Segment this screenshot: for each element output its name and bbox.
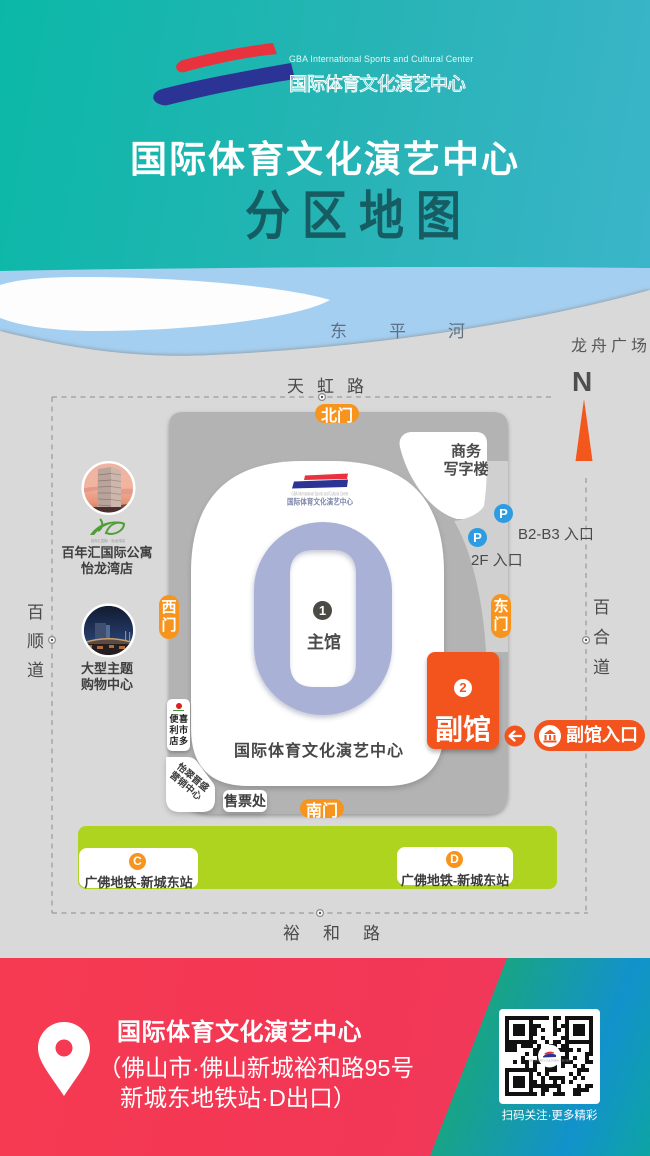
svg-text:售票处: 售票处 bbox=[223, 793, 267, 809]
svg-text:百年汇国际 · 怡龙湾店: 百年汇国际 · 怡龙湾店 bbox=[91, 538, 126, 543]
svg-text:国际体育文化演艺中心: 国际体育文化演艺中心 bbox=[287, 497, 353, 507]
svg-text:GBA SPORTS CULTURAL CENTER: GBA SPORTS CULTURAL CENTER bbox=[528, 1059, 570, 1063]
